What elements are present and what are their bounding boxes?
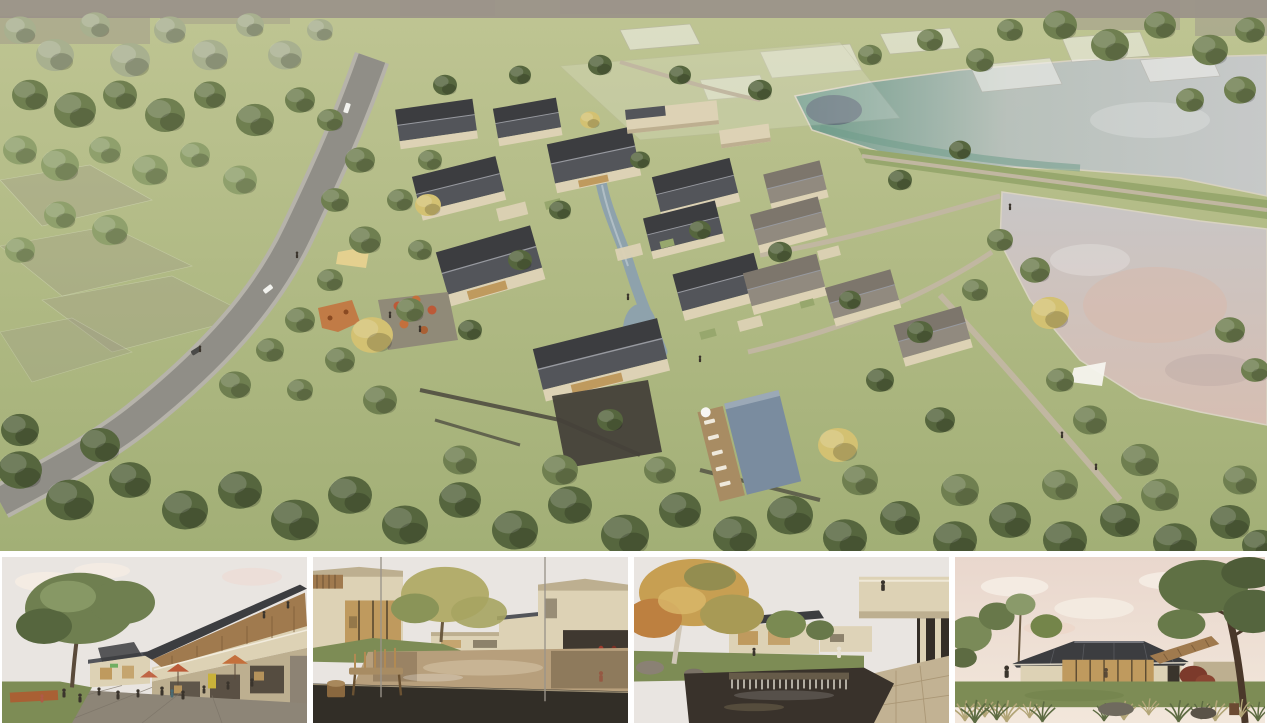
- thumbnail-waterfall-courtyard: [634, 557, 949, 723]
- waterfall-pond: [684, 668, 894, 723]
- thumb3-svg: [634, 557, 949, 723]
- thumb4-svg: [955, 557, 1265, 723]
- thumb1-svg: [2, 557, 307, 723]
- left-building: [313, 567, 403, 652]
- visitor-figure: [1004, 666, 1009, 678]
- thumbnail-row: [0, 551, 1267, 723]
- small-tree: [766, 610, 806, 638]
- aerial-render-panel: [0, 0, 1267, 551]
- thumbnail-courtyard-pond: [313, 557, 628, 723]
- main-aerial-svg: [0, 0, 1267, 551]
- thumbnail-garden-pavilion: [955, 557, 1265, 723]
- thumbnail-plaza-street: [2, 557, 307, 723]
- standing-figure: [837, 647, 841, 658]
- presentation-board: [0, 0, 1267, 724]
- thumb2-svg: [313, 557, 628, 723]
